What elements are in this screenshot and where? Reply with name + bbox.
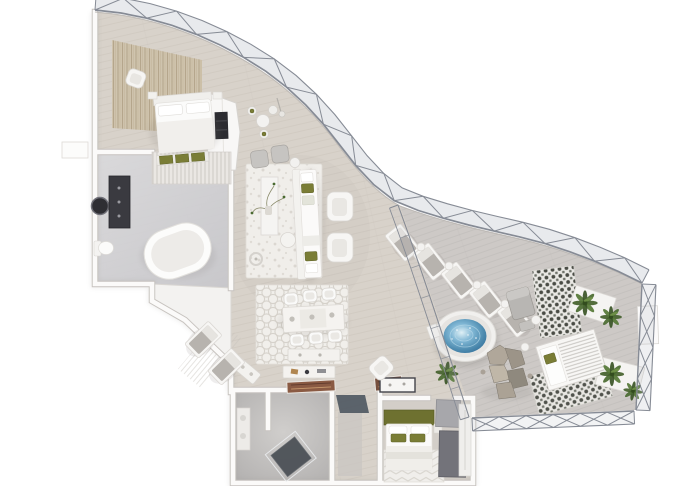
bench-cushion xyxy=(159,155,173,164)
sofa-pillow xyxy=(305,251,317,261)
artwork-rug xyxy=(287,380,336,393)
duvet xyxy=(156,118,214,154)
vanity-item xyxy=(118,201,121,204)
hall-runner xyxy=(338,412,362,476)
dining-room xyxy=(256,285,349,364)
bath2-vanity xyxy=(237,408,250,450)
lounger-side-table xyxy=(417,243,425,251)
lounger-side-table xyxy=(473,281,481,289)
pillow xyxy=(186,102,210,114)
sofa-pillow xyxy=(301,184,313,194)
vanity-item xyxy=(118,187,121,190)
olive-headboard xyxy=(384,410,434,425)
fern-plant xyxy=(572,290,597,315)
pillow xyxy=(411,426,429,434)
dining-table xyxy=(282,304,344,332)
vase xyxy=(265,206,272,215)
branch-leaf xyxy=(283,196,286,199)
nightstand xyxy=(148,92,157,99)
sofa-pillow xyxy=(302,195,314,205)
living-armchair xyxy=(327,233,353,262)
dining-chair xyxy=(290,334,305,347)
foyer-console xyxy=(283,366,335,378)
bench-cushion xyxy=(191,152,205,161)
sofa-pillow xyxy=(301,173,313,183)
pillow xyxy=(389,426,407,434)
bistro-chair xyxy=(269,106,278,115)
truss-web xyxy=(472,418,473,431)
white-desk xyxy=(380,378,415,392)
branch-leaf xyxy=(273,183,276,186)
bistro-table xyxy=(257,115,270,128)
pillow xyxy=(158,104,183,116)
dining-chair xyxy=(328,330,343,343)
second-bed xyxy=(384,410,434,470)
terrace-side-table xyxy=(532,316,541,325)
basin xyxy=(240,433,246,439)
truss-web xyxy=(634,411,635,424)
basin xyxy=(240,415,246,421)
truss-web xyxy=(642,284,656,285)
foyer-slate-inlay xyxy=(336,395,369,413)
sofa-throw xyxy=(303,235,321,246)
fern-plant xyxy=(600,362,624,386)
vanity-item xyxy=(118,215,121,218)
dining-chair xyxy=(303,290,318,303)
dining-chair xyxy=(322,288,337,301)
lamp-shade xyxy=(279,111,285,117)
lounger-side-table xyxy=(445,262,453,270)
sofa-pillow xyxy=(305,263,317,273)
sideboard xyxy=(288,349,340,361)
chair-cushion xyxy=(262,132,266,136)
floorplan-page xyxy=(0,0,680,486)
living-armchair xyxy=(327,192,353,221)
bench-cushion xyxy=(175,154,189,163)
floorplan-render xyxy=(0,0,680,486)
branch-leaf xyxy=(251,212,254,215)
throw xyxy=(386,452,432,459)
coffee-table xyxy=(281,233,296,248)
chair-cushion xyxy=(250,109,254,113)
olive-cushion xyxy=(391,434,406,442)
dining-chair xyxy=(284,293,299,306)
nightstand xyxy=(213,92,222,99)
truss-web xyxy=(636,410,650,411)
dining-chair xyxy=(309,332,324,345)
olive-cushion xyxy=(410,434,425,442)
terrace-side-table xyxy=(521,343,529,351)
outside-utility-box xyxy=(62,142,88,158)
round-mirror xyxy=(92,198,109,215)
fern-plant xyxy=(600,306,622,328)
